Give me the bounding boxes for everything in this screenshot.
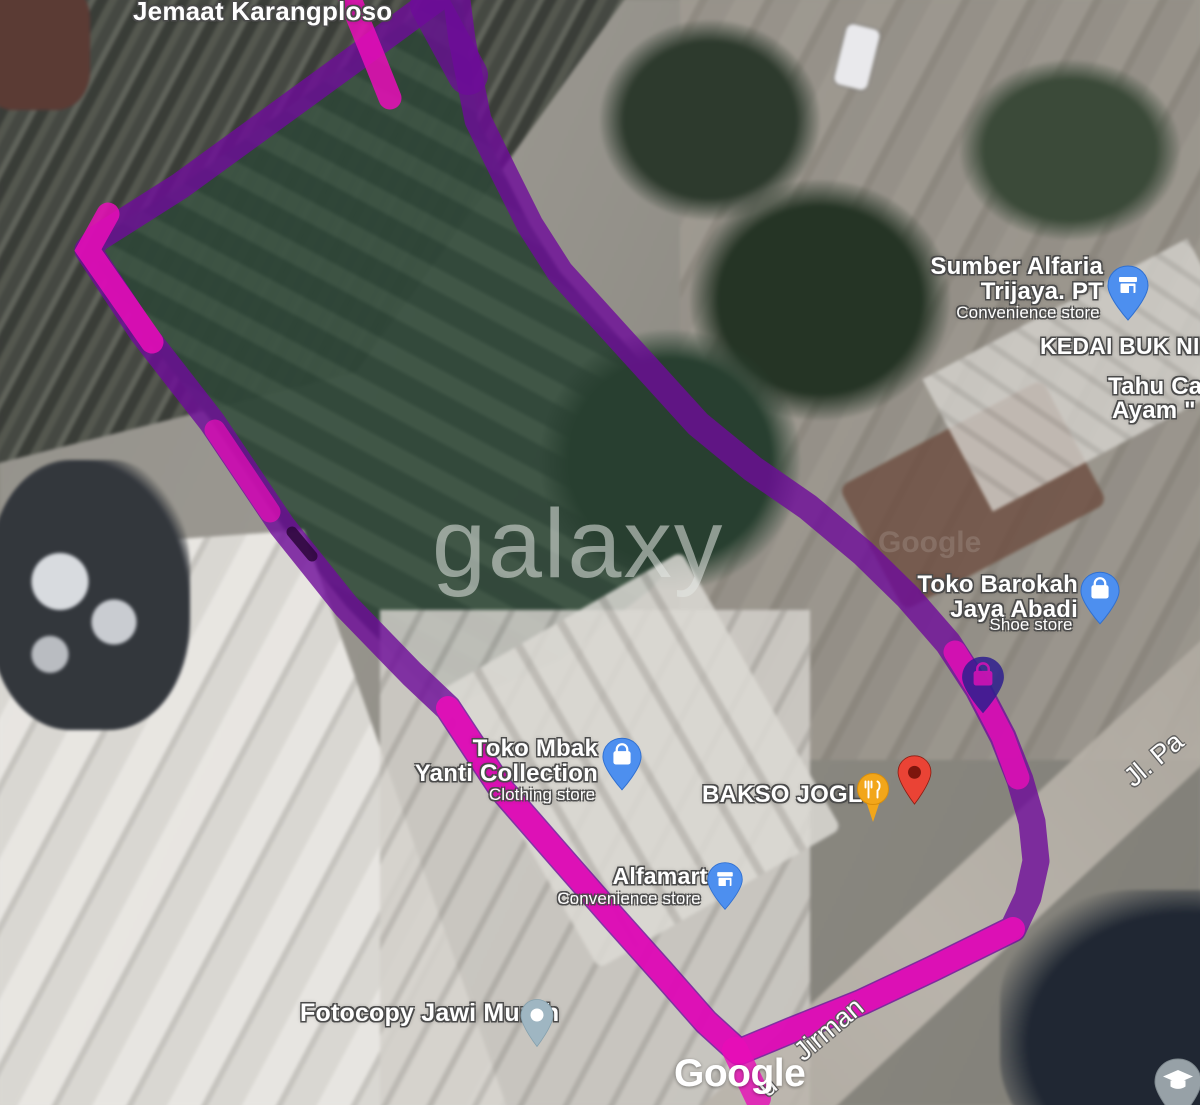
place-label-sumber-alfaria[interactable]: Sumber Alfaria Trijaya. PT [903, 254, 1103, 304]
place-subtitle-sumber-alfaria: Convenience store [938, 304, 1118, 322]
galaxy-watermark: galaxy [432, 488, 724, 600]
place-label-tahu-line1[interactable]: Tahu Cam [1108, 374, 1200, 399]
place-name-line: Sumber Alfaria [930, 253, 1103, 280]
red-destination-pin-icon[interactable] [896, 754, 933, 806]
place-name-line: Toko Mbak [473, 735, 598, 762]
place-label-kedai-buk-nik[interactable]: KEDAI BUK NIK [1040, 334, 1200, 358]
place-subtitle-alfamart: Convenience store [539, 890, 719, 908]
place-label-jemaat-karangploso[interactable]: Jemaat Karangploso [133, 0, 392, 25]
boundary-highlight-left-mid [215, 430, 270, 512]
google-watermark-faint: Google [878, 526, 981, 560]
place-label-tahu-line2[interactable]: Ayam " [1112, 398, 1196, 423]
google-logo: Google [674, 1052, 805, 1096]
place-label-toko-mbak-yanti[interactable]: Toko Mbak Yanti Collection [398, 736, 598, 786]
shopping-bag-pin-icon[interactable] [1079, 570, 1121, 626]
place-pin-grey-icon[interactable] [519, 998, 555, 1048]
storefront-pin-icon[interactable] [1106, 264, 1150, 322]
satellite-map-canvas[interactable]: Google galaxy Jemaat Karangploso Sumber … [0, 0, 1200, 1105]
shopping-bag-pin-icon[interactable] [601, 736, 643, 792]
education-pin-icon[interactable] [1152, 1056, 1200, 1105]
restaurant-pin-icon[interactable] [855, 772, 891, 826]
place-name-line: Yanti Collection [415, 760, 598, 787]
place-name-line: Trijaya. PT [981, 278, 1103, 305]
place-name-line: Toko Barokah [917, 571, 1078, 598]
shopping-bag-pin-dark-icon[interactable] [960, 654, 1006, 716]
storefront-pin-icon[interactable] [706, 860, 744, 912]
